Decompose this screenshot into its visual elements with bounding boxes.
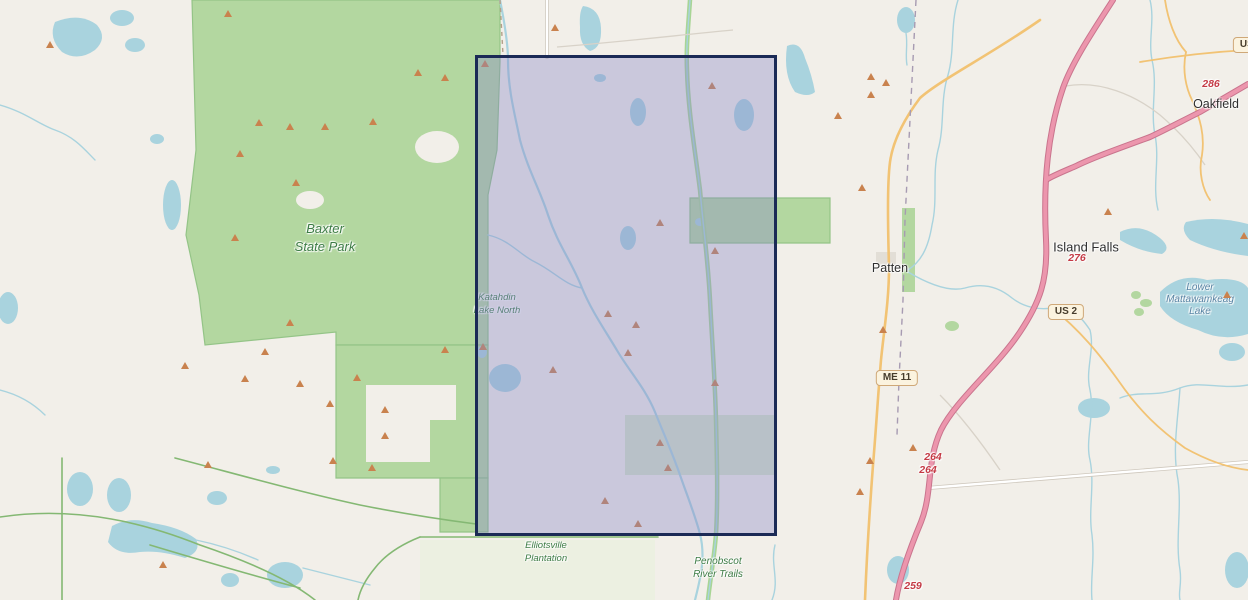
peak-icon <box>834 112 842 119</box>
peak-icon <box>381 406 389 413</box>
peak-icon <box>241 375 249 382</box>
peak-icon <box>231 234 239 241</box>
peak-icon <box>224 10 232 17</box>
peak-icon <box>159 561 167 568</box>
peak-icon <box>414 69 422 76</box>
peak-icon <box>867 91 875 98</box>
peak-icon <box>441 346 449 353</box>
peak-icon <box>181 362 189 369</box>
peak-icon <box>329 457 337 464</box>
peak-icon <box>1240 232 1248 239</box>
peak-icon <box>204 461 212 468</box>
peak-icon <box>879 326 887 333</box>
peak-icon <box>381 432 389 439</box>
peak-icon <box>286 123 294 130</box>
peak-icon <box>296 380 304 387</box>
peak-icon <box>909 444 917 451</box>
peak-icon <box>46 41 54 48</box>
peak-icon <box>353 374 361 381</box>
peak-icon <box>261 348 269 355</box>
peak-icon <box>882 79 890 86</box>
peak-icon <box>368 464 376 471</box>
peak-icon <box>286 319 294 326</box>
peak-icon <box>866 457 874 464</box>
peak-icon <box>551 24 559 31</box>
peak-icon <box>236 150 244 157</box>
peak-icon <box>255 119 263 126</box>
selection-rectangle[interactable] <box>475 55 777 536</box>
peak-icon <box>321 123 329 130</box>
peak-icon <box>369 118 377 125</box>
peak-icon <box>1223 291 1231 298</box>
peak-icon <box>292 179 300 186</box>
peak-icon <box>867 73 875 80</box>
peak-icon <box>326 400 334 407</box>
peak-icon <box>441 74 449 81</box>
peak-icon <box>1104 208 1112 215</box>
map-canvas[interactable]: Baxter State Park Katahdin Lake North El… <box>0 0 1248 600</box>
peak-icon <box>856 488 864 495</box>
peak-icon <box>858 184 866 191</box>
